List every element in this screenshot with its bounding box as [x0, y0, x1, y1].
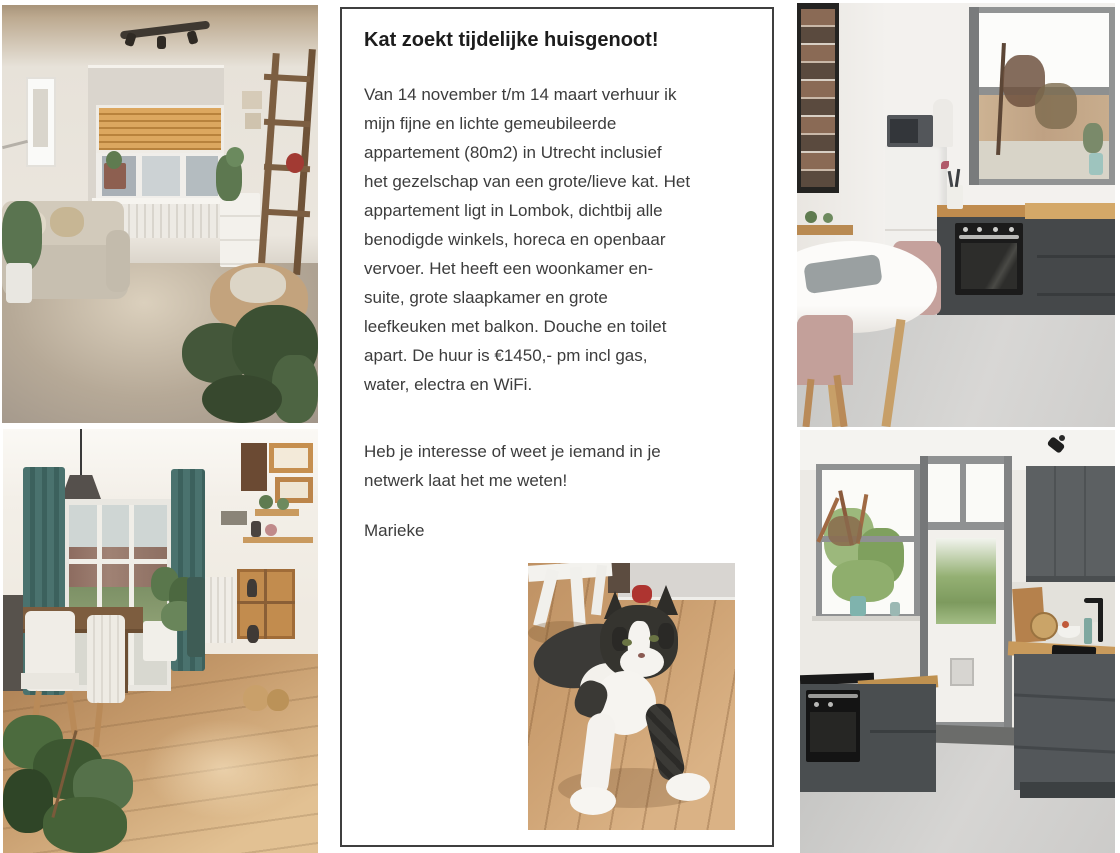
- window-pane-right: [186, 156, 218, 196]
- framed-art-print: [33, 89, 48, 147]
- french-doors-sky: [69, 505, 167, 551]
- oven-knob-3: [993, 227, 998, 232]
- cat-eye-right: [649, 635, 659, 642]
- drawer-line-1: [1037, 255, 1115, 258]
- cat-paw-white-left: [570, 787, 616, 815]
- teal-vase-shelf: [850, 596, 866, 616]
- wall-picture: [219, 509, 249, 527]
- left-oven-knob-2: [828, 702, 833, 707]
- door-window-green: [936, 538, 996, 624]
- counter-cutting-board: [1025, 203, 1115, 219]
- plant-by-window-top: [226, 147, 244, 167]
- rattan-chair-pillow: [230, 267, 286, 303]
- left-plant: [2, 201, 42, 271]
- window-plant-blob-2: [1035, 83, 1077, 129]
- sofa-armrest: [106, 230, 130, 292]
- spotlight-2: [157, 36, 166, 49]
- ceiling-spot-mount: [1059, 435, 1065, 441]
- small-wall-frame-1: [242, 91, 262, 109]
- cat-cheek-right: [658, 623, 674, 649]
- spice-shelf-plant-2: [823, 213, 833, 223]
- windowsill-plant: [106, 151, 122, 169]
- door-frame-edge-right: [1004, 456, 1012, 728]
- flyer-cta-text: Heb je interesse of weet je iemand in je…: [364, 437, 750, 495]
- faucet-spout: [1084, 598, 1103, 603]
- wall-spice-shelf: [797, 225, 853, 235]
- door-transom-mullion: [960, 464, 966, 522]
- mid-shelf-flowers: [265, 524, 277, 536]
- flyer-body-text: Van 14 november t/m 14 maart verhuur ik …: [364, 80, 750, 399]
- door-mullion-h: [69, 559, 167, 564]
- shelf-wood-box-2-inner: [280, 482, 308, 498]
- door-mullion-2: [129, 505, 134, 685]
- kitchen-table-photo: [797, 3, 1115, 427]
- teal-cloth: [187, 577, 205, 657]
- cat-eye-left: [622, 639, 632, 646]
- right-cabinet-plinth: [1020, 782, 1115, 798]
- upper-cabinets: [1026, 466, 1115, 582]
- utensil-cup: [947, 185, 963, 209]
- plant-shelf: [255, 509, 299, 516]
- left-drawer-groove: [870, 730, 936, 733]
- dining-room-photo: [3, 429, 318, 853]
- flyer-text-panel: Kat zoekt tijdelijke huisgenoot! Van 14 …: [340, 7, 774, 847]
- flyer-page: Kat zoekt tijdelijke huisgenoot! Van 14 …: [0, 0, 1120, 853]
- left-oven-handle: [808, 694, 858, 698]
- upper-cabinet-seam-1: [1054, 466, 1056, 582]
- bottle-teal: [1084, 618, 1092, 644]
- photo-collage-grid: [801, 9, 835, 187]
- mid-shelf-vase: [251, 521, 261, 537]
- drawer-line-2: [1037, 293, 1115, 296]
- red-flowers: [286, 153, 304, 173]
- flyer-title: Kat zoekt tijdelijke huisgenoot!: [364, 27, 750, 53]
- right-cabinets: [1014, 654, 1115, 790]
- sofa-pillow-tan: [50, 207, 84, 237]
- cat-photo: [528, 563, 735, 830]
- dining-radiator: [205, 577, 235, 643]
- oven-knob-1: [963, 227, 968, 232]
- plant-shelf-green-2: [277, 498, 289, 510]
- basket-2: [267, 689, 289, 711]
- shelf-dark-box: [241, 443, 267, 491]
- round-serving-board: [1030, 612, 1058, 640]
- red-flower-behind-cat: [632, 585, 652, 603]
- cat-paw-white-right: [666, 773, 710, 801]
- plant-shelf-green-1: [259, 495, 273, 509]
- white-chair-1-seat: [21, 673, 79, 689]
- white-chair-2-back: [87, 615, 125, 703]
- left-plant-pot: [6, 263, 32, 303]
- window-blinds: [96, 105, 224, 153]
- shelf-wood-box-1-inner: [274, 448, 308, 468]
- pendant-lamp-cord: [80, 429, 82, 477]
- spice-shelf-plant-1: [805, 211, 817, 223]
- dark-chair-left: [3, 595, 23, 691]
- dried-plant-blob: [828, 516, 862, 546]
- window-pane-mid: [142, 156, 180, 196]
- living-room-photo: [2, 5, 318, 423]
- microwave-door: [890, 119, 918, 143]
- compartment-line-v: [264, 569, 267, 639]
- door-transom-window: [928, 464, 1004, 522]
- basket-1: [243, 685, 269, 711]
- oven-knob-4: [1009, 227, 1014, 232]
- flyer-signature: Marieke: [364, 516, 750, 545]
- sideboard: [220, 193, 260, 267]
- white-appliance: [933, 99, 953, 147]
- oven-handle: [959, 235, 1019, 239]
- fruit: [1062, 621, 1069, 628]
- window-sill-teal-vase: [1089, 153, 1103, 175]
- pink-chair-front: [797, 315, 853, 385]
- compartment-vase: [247, 579, 257, 597]
- butterfly-decal: [941, 161, 949, 169]
- small-vase-shelf: [890, 602, 900, 616]
- small-wall-frame-2: [245, 113, 261, 129]
- big-plant-leaf-4: [202, 375, 282, 423]
- window-sill-green: [1083, 123, 1103, 153]
- doormat: [928, 724, 1017, 745]
- low-shelf-vase: [247, 625, 259, 643]
- faucet-riser: [1098, 598, 1103, 642]
- floor-sun-patch: [143, 719, 303, 819]
- left-oven-window: [810, 712, 856, 752]
- kitchen-door-photo: [800, 430, 1115, 853]
- fruit-bowl: [1058, 626, 1080, 638]
- left-oven-knob-1: [814, 702, 819, 707]
- oven-window: [961, 243, 1017, 289]
- mid-shelf: [243, 537, 313, 543]
- cat-nose: [638, 653, 645, 658]
- upper-cabinet-seam-2: [1084, 466, 1086, 582]
- kitchen1-window-edge: [969, 7, 979, 185]
- window-shelf: [812, 616, 924, 621]
- oven-knob-2: [977, 227, 982, 232]
- cat-flap: [950, 658, 974, 686]
